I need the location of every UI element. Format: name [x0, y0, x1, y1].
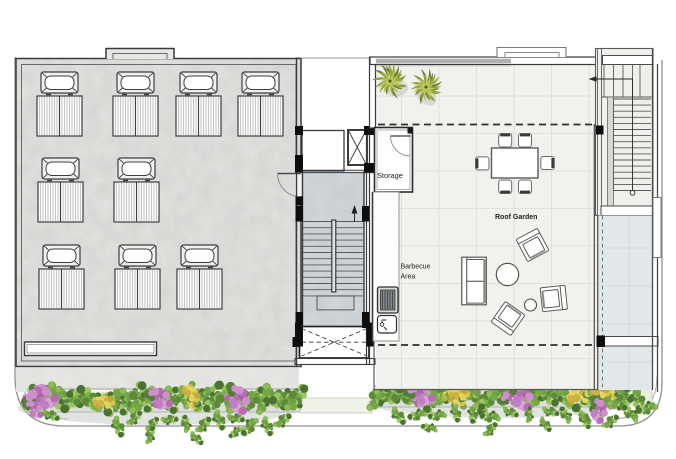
svg-text:Roof Garden: Roof Garden	[495, 214, 537, 221]
svg-text:Storage: Storage	[377, 171, 403, 180]
svg-text:Area: Area	[401, 274, 416, 281]
svg-text:Barbecue: Barbecue	[401, 264, 431, 271]
